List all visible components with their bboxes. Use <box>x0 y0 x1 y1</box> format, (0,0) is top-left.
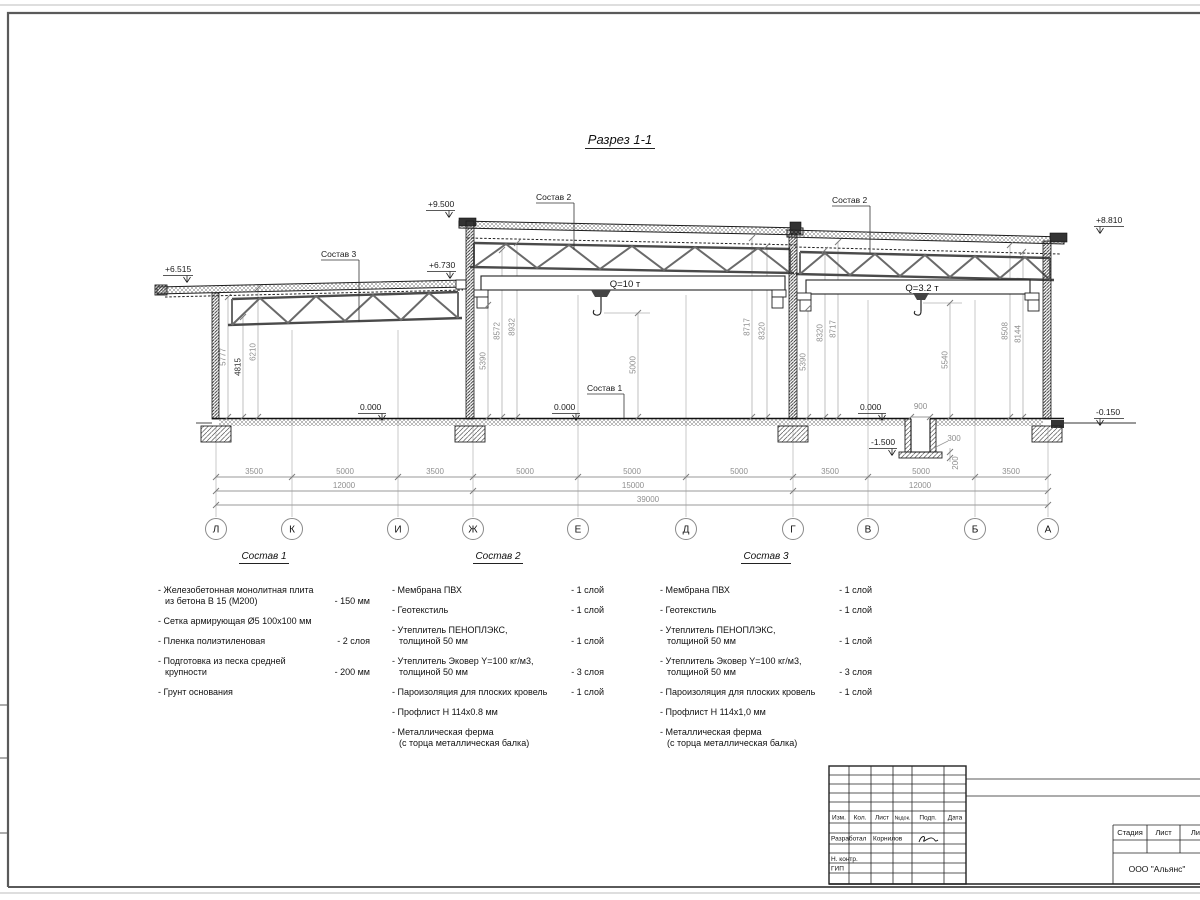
legend-item-name: - Грунт основания <box>158 687 370 698</box>
dim-span: 5000 <box>912 467 930 476</box>
dim-span: 3500 <box>821 467 839 476</box>
dim-bay: 15000 <box>622 481 645 490</box>
tb-header-list: Лист <box>875 815 889 822</box>
right-roof <box>787 230 1067 280</box>
vdim: 5000 <box>629 356 638 374</box>
page-title: Разрез 1-1 <box>555 132 685 147</box>
vertical-dim-texts: 5777 4815 6210 5390 8572 8932 5000 8717 … <box>219 318 1023 376</box>
legend-item-name: - Утеплитель ПЕНОПЛЭКС, толщиной 50 мм <box>392 625 571 647</box>
legend-item-name: - Сетка армирующая Ø5 100х100 мм <box>158 616 370 627</box>
callout-sostav2-right: Состав 2 <box>832 195 868 205</box>
legend-item-name: - Мембрана ПВХ <box>392 585 571 596</box>
vdim: 8932 <box>508 318 517 336</box>
dim-span: 3500 <box>245 467 263 476</box>
legend-item-name: - Утеплитель Эковер Y=100 кг/м3, толщино… <box>392 656 571 678</box>
grid-label: Ж <box>468 525 478 536</box>
vdim: 4815 <box>234 358 243 376</box>
ground-level: -0.150 <box>1096 407 1120 417</box>
legend-title: Состав 2 <box>392 551 604 563</box>
tb-sheets-label: Листов <box>1191 828 1200 837</box>
vdim: 6210 <box>249 343 258 361</box>
low-roof <box>155 280 466 325</box>
grid-label: Д <box>683 525 690 536</box>
legend-item-name: - Геотекстиль <box>392 605 571 616</box>
legend-item-value: - 1 слой <box>839 636 872 647</box>
legend-item-name: - Профлист Н 114х1,0 мм <box>660 707 872 718</box>
grid-label: В <box>865 525 872 536</box>
legend-item: - Утеплитель ПЕНОПЛЭКС, толщиной 50 мм -… <box>392 625 604 647</box>
grid-label: А <box>1045 525 1052 536</box>
vdim: 8144 <box>1014 325 1023 343</box>
legend-item-name: - Металлическая ферма (с торца металличе… <box>392 727 604 749</box>
vdim: 8572 <box>493 322 502 340</box>
floor <box>196 419 1136 429</box>
legend-item: - Утеплитель Эковер Y=100 кг/м3, толщино… <box>660 656 872 678</box>
dim-bay: 12000 <box>909 481 932 490</box>
tb-company: ООО "Альянс" <box>1129 864 1186 874</box>
legend-title: Состав 1 <box>158 551 370 563</box>
legend-item-name: - Геотекстиль <box>660 605 839 616</box>
legend-item: - Мембрана ПВХ - 1 слой <box>660 585 872 596</box>
legend-item-name: - Пароизоляция для плоских кровель <box>392 687 571 698</box>
dim-span: 5000 <box>730 467 748 476</box>
grid-label: К <box>289 525 295 536</box>
signature <box>919 837 938 843</box>
dim-bay: 12000 <box>333 481 356 490</box>
vdim: 5777 <box>219 348 228 366</box>
legend-item-value: - 1 слой <box>839 585 872 596</box>
mid-roof <box>459 218 803 273</box>
callout-sostav1: Состав 1 <box>587 383 623 393</box>
vdim: 8320 <box>816 324 825 342</box>
legend-item-name: - Металлическая ферма (с торца металличе… <box>660 727 872 749</box>
vdim: 8717 <box>829 320 838 338</box>
building-section <box>155 218 1136 458</box>
titleblock: Изм. Кол. Лист №док. Подп. Дата Стадия Л… <box>829 766 1200 884</box>
floor-level: 0.000 <box>554 402 576 412</box>
grid-bubbles: Л К И Ж Е Д Г В Б А <box>206 519 1059 540</box>
vdim: 5390 <box>479 352 488 370</box>
legend-sostav-2: Состав 2 - Мембрана ПВХ - 1 слой - Геоте… <box>392 551 604 758</box>
legend-item-value: - 1 слой <box>839 605 872 616</box>
legend-item: - Профлист Н 114х0.8 мм <box>392 707 604 718</box>
tb-role-developed: Разработал <box>831 835 867 843</box>
elevation-low-right: +6.730 <box>429 260 456 270</box>
legend-item: - Утеплитель Эковер Y=100 кг/м3, толщино… <box>392 656 604 678</box>
dimension-rows <box>216 417 1048 505</box>
legend-item-value: - 1 слой <box>571 687 604 698</box>
legend-item: - Грунт основания <box>158 687 370 698</box>
legend-item: - Сетка армирующая Ø5 100х100 мм <box>158 616 370 627</box>
legend-item: - Подготовка из песка средней крупности … <box>158 656 370 678</box>
grid-label: Е <box>575 525 582 536</box>
elevation-mid-top: +9.500 <box>428 199 455 209</box>
tb-header-ndok: №док. <box>894 816 911 822</box>
dim-span: 3500 <box>426 467 444 476</box>
legend-title: Состав 3 <box>660 551 872 563</box>
tb-role-gip: ГИП <box>831 866 844 873</box>
legend-sostav-3: Состав 3 - Мембрана ПВХ - 1 слой - Геоте… <box>660 551 872 758</box>
legend-item: - Железобетонная монолитная плита из бет… <box>158 585 370 607</box>
legend-item-value: - 1 слой <box>571 636 604 647</box>
dim-total: 39000 <box>637 495 660 504</box>
legend-item: - Утеплитель ПЕНОПЛЭКС, толщиной 50 мм -… <box>660 625 872 647</box>
dim-span: 5000 <box>516 467 534 476</box>
legend-item: - Металлическая ферма (с торца металличе… <box>660 727 872 749</box>
grid-label: И <box>394 525 401 536</box>
elevation-right-top: +8.810 <box>1096 215 1123 225</box>
tb-header-kol: Кол. <box>854 815 867 822</box>
pit-wall-dim: 300 <box>947 434 961 443</box>
grid-label: Б <box>972 525 979 536</box>
legend-item-value: - 1 слой <box>571 585 604 596</box>
grid-label: Л <box>213 525 220 536</box>
legend-item-name: - Пароизоляция для плоских кровель <box>660 687 839 698</box>
legend-item-name: - Мембрана ПВХ <box>660 585 839 596</box>
pit-level: -1.500 <box>871 437 895 447</box>
floor-level: 0.000 <box>860 402 882 412</box>
legend-item-name: - Утеплитель ПЕНОПЛЭКС, толщиной 50 мм <box>660 625 839 647</box>
legend-item-value: - 150 мм <box>335 596 370 607</box>
tb-header-izm: Изм. <box>832 815 846 822</box>
crane-capacity-right: Q=3.2 т <box>905 283 939 294</box>
vdim: 5390 <box>799 353 808 371</box>
tb-header-data: Дата <box>948 815 963 822</box>
legend-item-value: - 2 слоя <box>337 636 370 647</box>
legend-item-value: - 1 слой <box>839 687 872 698</box>
dim-span: 5000 <box>336 467 354 476</box>
vdim: 8508 <box>1001 322 1010 340</box>
legend-item-value: - 3 слоя <box>571 667 604 678</box>
dim-span: 5000 <box>623 467 641 476</box>
legend-item: - Профлист Н 114х1,0 мм <box>660 707 872 718</box>
vdim: 8320 <box>758 322 767 340</box>
tb-sheet-label: Лист <box>1155 828 1172 837</box>
legend-item-name: - Утеплитель Эковер Y=100 кг/м3, толщино… <box>660 656 839 678</box>
legend-item: - Пароизоляция для плоских кровель - 1 с… <box>660 687 872 698</box>
legend-sostav-1: Состав 1 - Железобетонная монолитная пли… <box>158 551 370 707</box>
tb-developer-name: Корнилов <box>873 836 903 843</box>
pit-width-dim: 900 <box>914 402 928 411</box>
tb-header-podp: Подп. <box>919 815 936 822</box>
drawing-sheet: 3500 5000 3500 5000 5000 5000 3500 5000 … <box>0 0 1200 900</box>
legend-item: - Геотекстиль - 1 слой <box>660 605 872 616</box>
legend-item-value: - 200 мм <box>335 667 370 678</box>
vdim: 5540 <box>941 351 950 369</box>
legend-item: - Пароизоляция для плоских кровель - 1 с… <box>392 687 604 698</box>
legend-item: - Металлическая ферма (с торца металличе… <box>392 727 604 749</box>
tb-role-ncontrol: Н. контр. <box>831 856 858 863</box>
legend-item-name: - Железобетонная монолитная плита из бет… <box>158 585 335 607</box>
floor-level: 0.000 <box>360 402 382 412</box>
section-title-text: Разрез 1-1 <box>585 132 655 149</box>
callout-sostav2-mid: Состав 2 <box>536 192 572 202</box>
legend-item-name: - Профлист Н 114х0.8 мм <box>392 707 604 718</box>
legend-item: - Пленка полиэтиленовая - 2 слоя <box>158 636 370 647</box>
vdim: 8717 <box>743 318 752 336</box>
dim-span: 3500 <box>1002 467 1020 476</box>
callout-sostav3: Состав 3 <box>321 249 357 259</box>
elevation-left-eave: +6.515 <box>165 264 192 274</box>
legend-item-name: - Подготовка из песка средней крупности <box>158 656 335 678</box>
legend-item: - Мембрана ПВХ - 1 слой <box>392 585 604 596</box>
crane-capacity-mid: Q=10 т <box>610 279 641 290</box>
legend-item-value: - 1 слой <box>571 605 604 616</box>
grid-label: Г <box>790 525 796 536</box>
pit-slab-dim: 200 <box>951 456 960 470</box>
legend-item-name: - Пленка полиэтиленовая <box>158 636 337 647</box>
legend-item: - Геотекстиль - 1 слой <box>392 605 604 616</box>
tb-stage-label: Стадия <box>1117 828 1143 837</box>
legend-item-value: - 3 слоя <box>839 667 872 678</box>
